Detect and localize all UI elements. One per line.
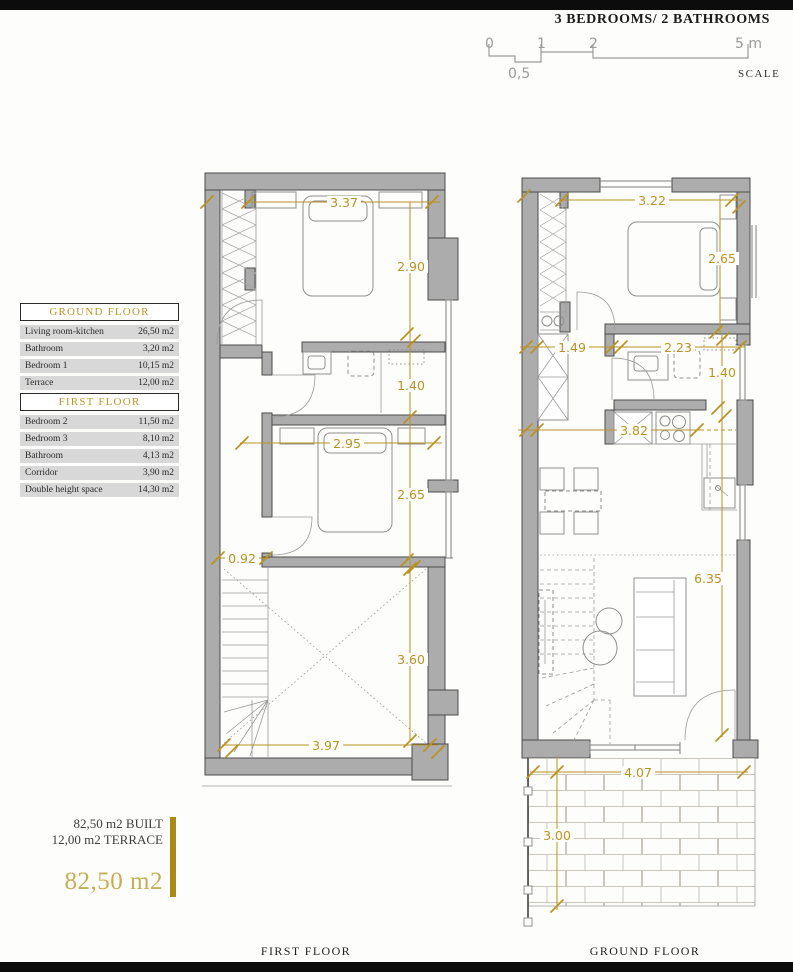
svg-text:2.90: 2.90 — [397, 259, 425, 274]
dimension-label: 3.37 — [327, 195, 361, 210]
dimension-label: 1.40 — [394, 378, 428, 393]
dimension-label: 3.97 — [309, 738, 343, 753]
caption-ground-floor: GROUND FLOOR — [575, 944, 715, 959]
dimension-label: 3.00 — [540, 828, 574, 843]
svg-text:3.60: 3.60 — [397, 652, 425, 667]
first-floor-plan: 3.37 2.90 1.40 2.95 2.65 0.92 — [201, 173, 458, 786]
bottom-black-bar — [0, 962, 793, 972]
ff-dimensions: 3.37 2.90 1.40 2.95 2.65 0.92 — [201, 195, 444, 758]
dimension-label: 2.90 — [394, 259, 428, 274]
svg-text:1.40: 1.40 — [708, 365, 736, 380]
ff-windows — [445, 300, 453, 558]
svg-text:0.92: 0.92 — [228, 551, 256, 566]
ff-staircase-lower — [222, 567, 268, 758]
svg-text:2.65: 2.65 — [708, 251, 736, 266]
floor-plan-drawing: 3.37 2.90 1.40 2.95 2.65 0.92 — [0, 0, 793, 972]
ground-floor-plan: 3.22 2.65 1.49 2.23 1.40 3.82 — [518, 178, 758, 926]
dimension-label: 2.23 — [661, 340, 695, 355]
dimension-label: 1.40 — [705, 365, 739, 380]
svg-text:2.95: 2.95 — [333, 436, 361, 451]
svg-text:3.22: 3.22 — [638, 193, 666, 208]
svg-text:6.35: 6.35 — [694, 571, 722, 586]
dimension-label: 2.65 — [705, 251, 739, 266]
svg-text:3.82: 3.82 — [620, 423, 648, 438]
dimension-label: 4.07 — [621, 765, 655, 780]
caption-first-floor: FIRST FLOOR — [236, 944, 376, 959]
dimension-label: 3.82 — [617, 423, 651, 438]
dimension-label: 0.92 — [225, 551, 259, 566]
dimension-label: 3.22 — [635, 193, 669, 208]
svg-text:3.00: 3.00 — [543, 828, 571, 843]
svg-text:1.40: 1.40 — [397, 378, 425, 393]
dimension-label: 6.35 — [691, 571, 725, 586]
svg-text:3.37: 3.37 — [330, 195, 358, 210]
svg-text:2.65: 2.65 — [397, 487, 425, 502]
svg-text:4.07: 4.07 — [624, 765, 652, 780]
svg-text:3.97: 3.97 — [312, 738, 340, 753]
dimension-label: 3.60 — [394, 652, 428, 667]
floor-plan-sheet: 3 BEDROOMS/ 2 BATHROOMS 0 1 2 5 m 0,5 SC… — [0, 0, 793, 972]
svg-text:2.23: 2.23 — [664, 340, 692, 355]
dimension-label: 1.49 — [555, 340, 589, 355]
dimension-label: 2.95 — [330, 436, 364, 451]
svg-text:1.49: 1.49 — [558, 340, 586, 355]
dimension-label: 2.65 — [394, 487, 428, 502]
gf-dining-set — [540, 468, 601, 534]
